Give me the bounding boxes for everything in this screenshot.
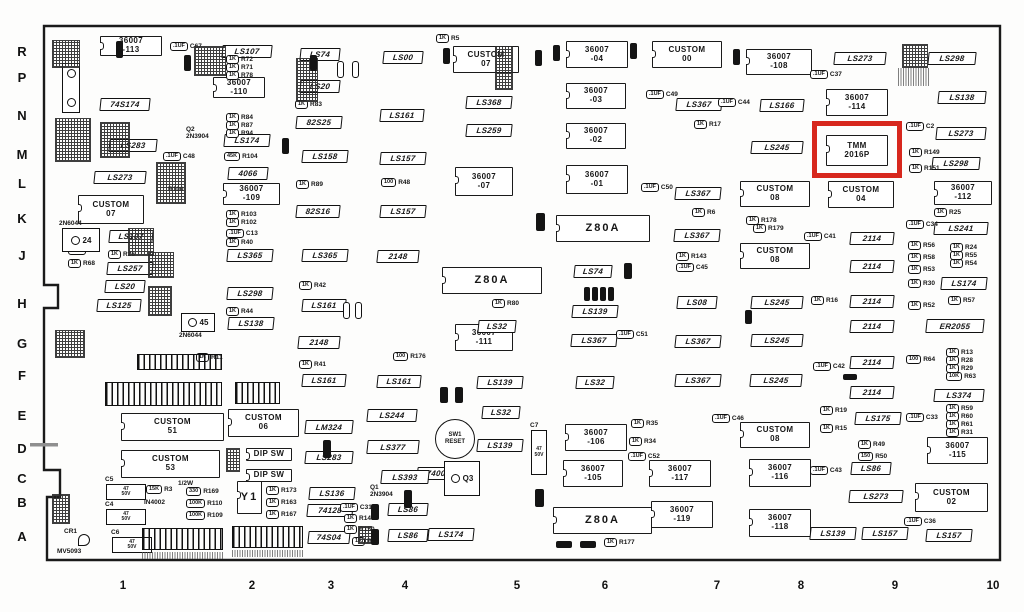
chip-label: LS139 [476,376,523,389]
value-pill: 1K [266,486,279,495]
value-pill: 100 [906,355,921,364]
value-pill: 1K [604,538,617,547]
pin-header [137,354,222,370]
chip-label: LS273 [833,52,886,65]
chip-label: LS161 [379,109,424,122]
chip-label: LS365 [301,249,348,262]
value-pill: 1K [909,164,922,173]
part-designator: R68 [83,260,95,267]
value-pill: 1K [908,265,921,274]
value-pill: 1K [948,296,961,305]
chip-label: LS139 [476,439,523,452]
cap-bar [580,541,596,548]
part-label: 2N6044 [59,220,82,227]
value-pill: .1UF [810,70,828,79]
cap-bar [624,263,632,279]
part-designator: R63 [964,373,976,380]
chip-label: LS367 [570,334,617,347]
cap-bar [282,138,289,154]
part-designator: R78 [241,72,253,79]
chip-label: LS245 [750,141,803,154]
part-designator: R173 [281,487,297,494]
chip-label: ER2055 [925,319,984,333]
value-pill: .1UF [906,122,924,131]
value-pill: 1K [908,241,921,250]
component-cluster [52,494,70,524]
value-pill: .1UF [904,517,922,526]
ic-box: Z80A [556,215,650,242]
part-designator: C49 [666,91,678,98]
ic-box: 36007 -112 [934,181,992,205]
ic-box: CUSTOM 51 [121,413,224,441]
part-designator: C46 [732,415,744,422]
chip-label: LS273 [935,127,986,140]
chip-label: 2114 [849,320,894,333]
pin-header [105,382,222,406]
chip-label: LS125 [96,299,141,312]
part-designator: R169 [203,488,219,495]
ic-box: 36007 -105 [563,460,623,487]
value-pill: 10K [946,372,962,381]
value-pill: 1K [226,218,239,227]
part-label: 1/2W [178,480,193,487]
resistor: 1KR16 [811,295,838,305]
component-cluster [156,162,186,204]
chip-label: LS139 [571,305,618,318]
capacitor: .1UFC37 [810,69,842,79]
component-cluster [148,252,174,278]
component-cluster [55,118,91,162]
part-designator: R50 [875,453,887,460]
component-cluster [52,40,80,68]
cap-bar [733,49,740,65]
reset-switch: SW1 RESET [435,419,475,459]
value-pill: 1K [226,129,239,138]
value-pill: 1K [946,428,959,437]
part-label: Q2 2N3904 [186,126,209,141]
ic-box: CUSTOM 53 [121,450,220,478]
part-designator: R58 [923,254,935,261]
part-designator: R35 [646,420,658,427]
value-pill: 100 [381,178,396,187]
value-pill: 45K [224,152,240,161]
value-pill: 1K [858,440,871,449]
part-designator: R109 [207,512,223,519]
resistor-vertical [352,61,359,78]
resistor: 100R48 [381,177,410,187]
chip-label: LS161 [376,375,421,388]
resistor: 1KR56 [908,240,935,250]
value-pill: .1UF [676,263,694,272]
ic-box: 36007 -106 [565,424,627,451]
resistor: 1KR58 [908,252,935,262]
part-designator: R15 [835,425,847,432]
chip-label: 2114 [849,295,894,308]
value-pill: 1K [629,437,642,446]
chip-label: LS32 [575,376,614,389]
value-pill: 1K [934,208,947,217]
resistor: 1KR44 [226,306,253,316]
part-designator: R30 [923,280,935,287]
chip-label: LS138 [937,91,986,104]
resistor: 150R50 [858,451,887,461]
fine-print [142,552,223,559]
chip-label: LS139 [809,527,856,540]
resistor: 10KR63 [946,371,976,381]
cap-bar [608,287,614,301]
part-designator: R179 [768,225,784,232]
part-designator: C13 [246,230,258,237]
chip-label: LS368 [465,96,512,109]
part-designator: R17 [709,121,721,128]
ic-box: 36007 -117 [649,460,711,487]
chip-label: LS377 [366,440,419,454]
pin-header [232,526,303,548]
part-designator: C51 [636,331,648,338]
part-designator: C41 [824,233,836,240]
part-designator: C4 [105,501,113,508]
ic-box: 36007 -02 [566,123,626,149]
chip-label: LS259 [465,124,512,137]
cap-bar [592,287,598,301]
component-layer: 36007 -113CUSTOM 0736007 -04CUSTOM 00360… [0,0,1024,612]
part-label: CR1 [64,528,77,535]
chip-label: LS245 [749,374,802,387]
cap-bar [371,504,379,520]
value-pill: 1K [266,498,279,507]
resistor: 1KR151 [909,163,940,173]
part-designator: R6 [707,209,715,216]
chip-label: 2114 [849,232,894,245]
component-cluster [194,46,226,76]
value-pill: 1K [820,406,833,415]
chip-label: LS245 [750,296,803,309]
capacitor: .1UFC36 [904,516,936,526]
chip-label: LS273 [848,490,903,503]
component-cluster [358,526,372,544]
cap-bar [553,45,560,61]
value-pill: 1K [266,510,279,519]
cap-bar [584,287,590,301]
resistor: 100KR109 [186,510,223,520]
resistor: 1KR31 [946,427,973,437]
chip-label: 2114 [849,356,894,369]
part-label: IN4002 [144,499,165,506]
ic-box: 36007 -119 [651,501,713,528]
part-designator: R40 [241,239,253,246]
pin-header [235,382,280,404]
chip-label: LS257 [106,262,153,275]
ic-box: 36007 -115 [927,437,988,464]
value-pill: .1UF [718,98,736,107]
capacitor: .1UFC45 [676,262,708,272]
value-pill: 1K [296,180,309,189]
resistor: 1KR143 [676,251,707,261]
value-pill: .1UF [804,232,822,241]
chip-label: LS157 [861,527,908,540]
cap-bar [536,213,545,231]
capacitor: .1UFC13 [226,228,258,238]
part-designator: R53 [923,266,935,273]
value-pill: 1K [908,301,921,310]
resistor-vertical [337,61,344,78]
resistor: 1KR89 [296,179,323,189]
value-pill: 1K [820,424,833,433]
value-pill: .1UF [712,414,730,423]
chip-label: LS374 [933,389,984,402]
part-label: Q1 2N3904 [370,484,393,499]
cap-bar [116,41,123,58]
pin-header [142,528,223,550]
chip-label: 82S16 [295,205,340,218]
value-pill: 1K [753,224,766,233]
resistor: 1KR30 [908,278,935,288]
capacitor: .1UFC34 [906,219,938,229]
value-pill: 1K [908,253,921,262]
value-pill: .1UF [641,183,659,192]
part-designator: R5 [451,35,459,42]
resistor: 1KR179 [753,223,784,233]
ic-box: Z80A [442,267,542,294]
capacitor: .1UFC49 [646,89,678,99]
electrolytic-capacitor: C547 50V [106,484,146,500]
part-designator: C52 [648,453,660,460]
chip-label: LS166 [759,99,804,112]
chip-label: LS367 [674,335,721,348]
resistor: 1KR68 [68,258,95,268]
fine-print [232,550,303,557]
chip-label: LS174 [940,277,987,290]
chip-label: LS158 [301,150,348,163]
resistor: 1KR52 [908,300,935,310]
value-pill: 100K [186,511,205,520]
ic-box: CUSTOM 00 [652,41,722,68]
resistor: 45KR104 [224,151,258,161]
ic-box: CUSTOM 08 [740,181,810,207]
capacitor: .1UFC43 [810,465,842,475]
capacitor: .1UFC48 [163,151,195,161]
value-pill: .1UF [226,229,244,238]
chip-label: 82S25 [295,116,342,129]
part-designator: R102 [241,219,257,226]
pcb-layout-diagram: RPNMLKJHGFEDCBA12345678910 36007 -113CUS… [0,0,1024,612]
value-pill: 1K [692,208,705,217]
value-pill: 1K [226,71,239,80]
chip-label: LS298 [226,287,273,300]
ic-box: 36007 -110 [213,77,265,98]
part-designator: C44 [738,99,750,106]
part-designator: R167 [281,511,297,518]
value-pill: .1UF [646,90,664,99]
ic-box: CUSTOM 02 [915,483,988,512]
chip-label: LS365 [226,249,273,262]
resistor: 100R64 [906,354,935,364]
chip-label: 4066 [227,167,268,180]
ic-box: DIP SW [246,448,292,461]
value-pill: 1K [908,279,921,288]
value-pill: 1K [909,148,922,157]
cap-bar [843,374,857,380]
resistor: 1KR6 [692,207,715,217]
ic-box: 36007 -113 [100,36,162,56]
value-pill: .1UF [170,42,188,51]
component-cluster [148,286,172,316]
value-pill: .1UF [628,452,646,461]
part-designator: R41 [314,361,326,368]
resistor-vertical [355,302,362,319]
value-pill: 100K [186,499,205,508]
cap-bar [535,489,544,507]
value-pill: 1K [676,252,689,261]
resistor: 1KR80 [492,298,519,308]
part-designator: R34 [644,438,656,445]
ic-box: 36007 -114 [826,89,888,116]
part-designator: R44 [241,308,253,315]
resistor: 1KR42 [299,280,326,290]
ic-box: 36007 -109 [223,183,280,205]
part-designator: R177 [619,539,635,546]
chip-label: LS393 [380,470,429,484]
chip-label: LS32 [481,406,520,419]
chip-label: 2114 [849,260,894,273]
chip-label: LS244 [366,409,417,422]
resistor: 1KR78 [226,70,253,80]
resistor: 1KR15 [820,423,847,433]
resistor: 1KR40 [226,237,253,247]
chip-label: 2114 [849,386,894,399]
part-designator: C50 [661,184,673,191]
ic-box: 36007 -01 [566,165,628,194]
cap-bar [184,55,191,71]
resistor: 15KR3 [146,484,172,494]
transistor: Q3 [444,461,480,496]
part-designator: R104 [242,153,258,160]
value-pill: 15K [146,485,162,494]
resistor: 1KR41 [299,359,326,369]
ic-box: 36007 -07 [455,167,513,196]
value-pill: 100 [393,352,408,361]
electrolytic-capacitor: C747 50V [531,430,547,475]
chip-label: LS86 [850,462,891,475]
value-pill: .1UF [163,152,181,161]
chip-label: LS32 [477,320,516,333]
part-designator: C42 [833,363,845,370]
value-pill: 1K [631,419,644,428]
part-designator: R64 [923,356,935,363]
part-designator: C6 [111,529,119,536]
ic-box: 36007 -03 [566,83,626,109]
resistor: 1KR57 [948,295,975,305]
resistor: 1KR34 [629,436,656,446]
ic-box: CUSTOM 08 [740,422,810,448]
resistor-vertical [343,302,350,319]
cap-bar [310,55,317,71]
value-pill: .1UF [340,503,358,512]
cap-value: 47 50V [128,540,137,551]
resistor: 1KR35 [631,418,658,428]
chip-label: LS161 [301,299,346,312]
value-pill: 150 [858,452,873,461]
cap-bar [535,50,542,66]
resistor: 1KR177 [604,537,635,547]
ic-box: CUSTOM 08 [740,243,810,269]
resistor: 1KR148 [344,513,375,523]
chip-label: LS241 [933,222,988,235]
part-designator: R16 [826,297,838,304]
connector [62,63,80,113]
part-designator: R110 [207,500,222,507]
chip-label: LS136 [308,487,355,500]
cap-value: 47 50V [122,487,131,498]
electrolytic-capacitor: C447 50V [106,509,146,525]
part-designator: R163 [281,499,297,506]
component-cluster [55,330,85,358]
part-designator: C2 [926,123,934,130]
part-designator: C48 [183,153,195,160]
resistor: 1KR19 [820,405,847,415]
part-designator: R57 [963,297,975,304]
capacitor: .1UFC41 [804,231,836,241]
value-pill: 1K [492,299,505,308]
part-designator: R3 [164,486,172,493]
resistor: 1KR54 [950,258,977,268]
value-pill: 1K [811,296,824,305]
resistor: 1KR163 [266,497,297,507]
value-pill: .1UF [906,220,924,229]
value-pill: 1K [68,259,81,268]
part-label: MV5093 [57,548,81,555]
chip-label: LS298 [927,52,976,65]
chip-label: LS74 [573,265,612,278]
cap-bar [404,490,412,508]
resistor: 330R169 [186,486,219,496]
value-pill: 1K [108,250,121,259]
part-designator: C5 [105,476,113,483]
capacitor: .1UFC2 [906,121,934,131]
transistor: 24 [62,228,100,252]
chip-label: LM324 [304,420,353,434]
cap-bar [556,541,572,548]
part-designator: C37 [830,71,842,78]
ic-box: CUSTOM 07 [78,195,144,224]
resistor: 1KR149 [909,147,940,157]
chip-label: LS161 [301,374,346,387]
component-cluster [495,46,513,90]
ic-box: Z80A [553,507,652,534]
part-designator: R48 [398,179,410,186]
chip-label: LS367 [675,98,722,111]
part-designator: R151 [924,165,940,172]
part-designator: C36 [924,518,936,525]
part-designator: C45 [696,264,708,271]
part-designator: R49 [873,441,885,448]
value-pill: 1K [694,120,707,129]
resistor: 1KR25 [934,207,961,217]
chip-label: LS138 [227,317,274,330]
capacitor: .1UFC50 [641,182,673,192]
part-designator: R176 [410,353,426,360]
chip-label: LS367 [674,374,721,387]
part-designator: R31 [961,429,973,436]
chip-label: LS245 [750,334,803,347]
value-pill: 1K [436,34,449,43]
cap-value: 47 50V [122,512,131,523]
cap-bar [323,440,331,458]
resistor: 100KR110 [186,498,222,508]
capacitor: .1UFC52 [628,451,660,461]
part-designator: R80 [507,300,519,307]
cap-bar [371,529,379,545]
